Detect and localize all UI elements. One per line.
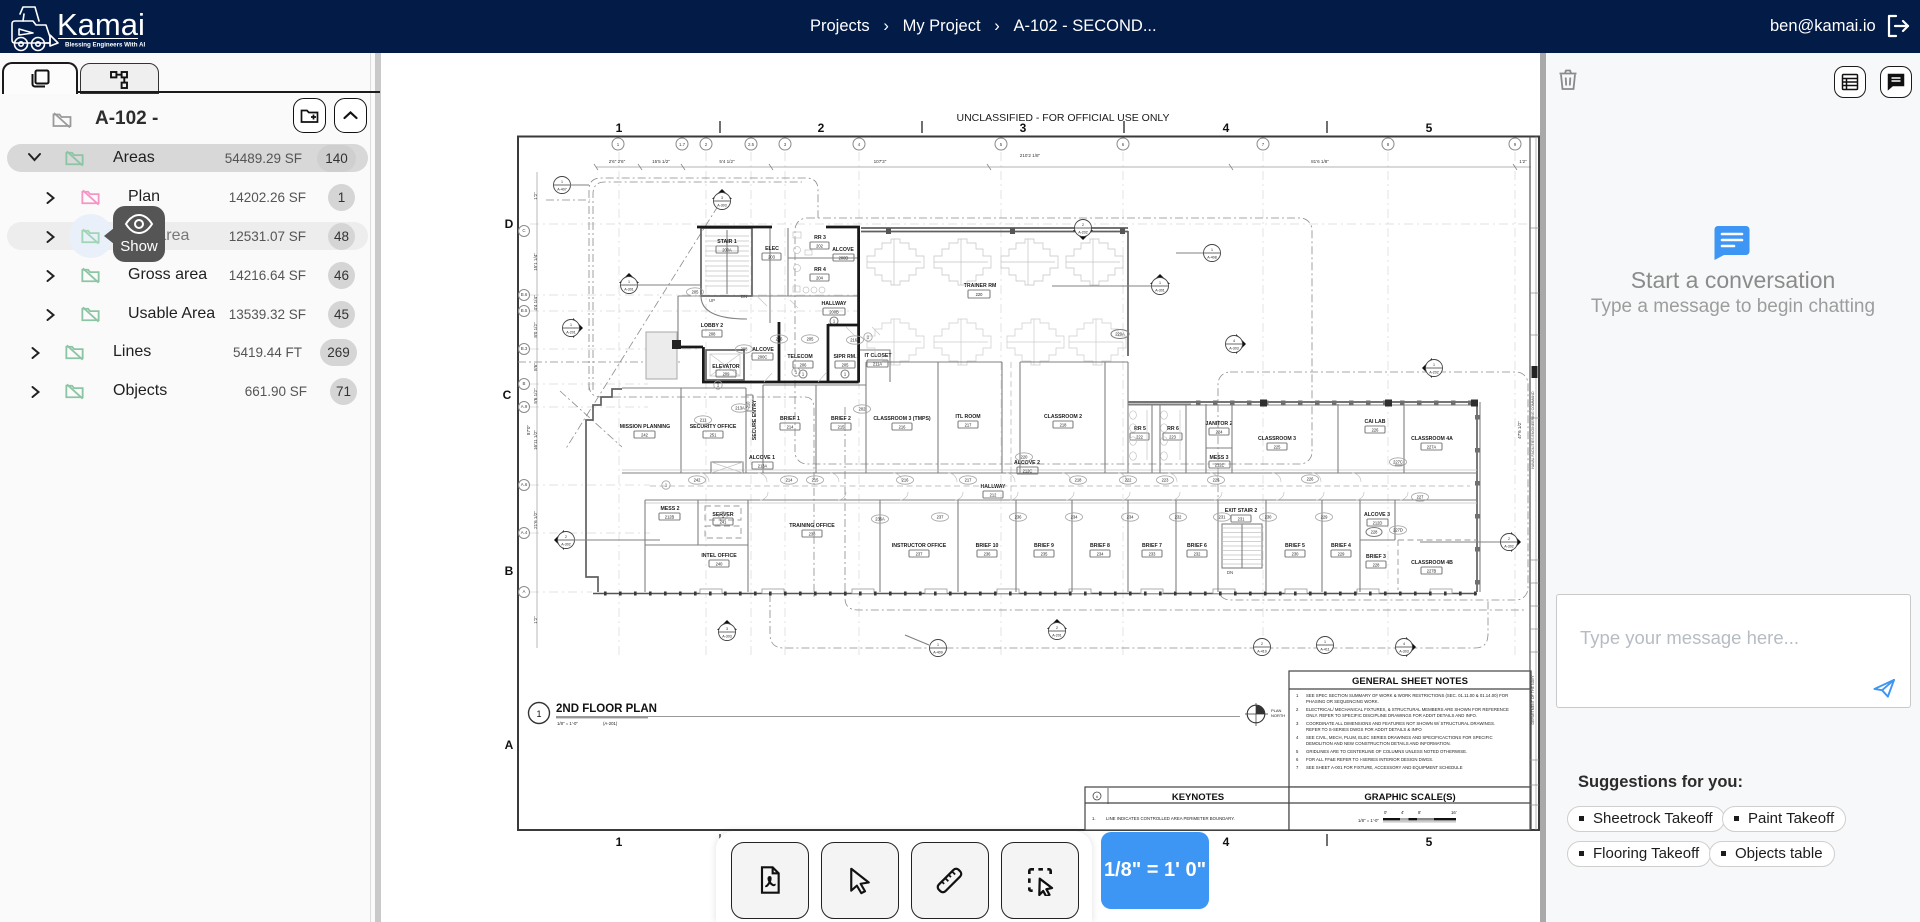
svg-text:224: 224 [1216, 430, 1224, 435]
svg-text:A.9: A.9 [521, 404, 528, 409]
svg-text:232: 232 [1194, 552, 1202, 557]
svg-text:214: 214 [786, 478, 794, 483]
svg-text:238: 238 [809, 532, 817, 537]
svg-text:2'6" 2'6": 2'6" 2'6" [609, 159, 626, 164]
svg-text:234: 234 [1097, 552, 1105, 557]
svg-text:216: 216 [899, 425, 907, 430]
svg-text:CLASSROOM 4A: CLASSROOM 4A [1411, 436, 1453, 442]
svg-text:3: 3 [1020, 121, 1027, 135]
svg-text:217: 217 [965, 423, 973, 428]
svg-text:A-302: A-302 [1504, 545, 1514, 549]
svg-text:200C: 200C [758, 355, 768, 360]
svg-text:SIPR RM.: SIPR RM. [833, 354, 857, 360]
svg-text:213A: 213A [758, 464, 768, 469]
svg-text:BRIEF 7: BRIEF 7 [1142, 543, 1162, 549]
svg-text:2: 2 [1261, 642, 1263, 646]
svg-text:TRAINING OFFICE: TRAINING OFFICE [789, 523, 835, 529]
svg-text:227B: 227B [1427, 569, 1437, 574]
svg-text:UP: UP [709, 298, 715, 303]
svg-text:212: 212 [990, 493, 998, 498]
svg-text:236A: 236A [875, 517, 885, 522]
svg-text:231: 231 [1238, 517, 1246, 522]
svg-text:JANITOR 2: JANITOR 2 [1205, 421, 1232, 427]
svg-text:4: 4 [1233, 339, 1235, 343]
svg-text:8'6": 8'6" [533, 363, 538, 371]
svg-text:215: 215 [838, 425, 846, 430]
svg-text:215: 215 [812, 478, 820, 483]
svg-text:107'3": 107'3" [874, 159, 887, 164]
svg-text:1.7: 1.7 [679, 142, 686, 147]
svg-text:RR 4: RR 4 [814, 267, 826, 273]
svg-text:A-202: A-202 [1429, 371, 1439, 375]
svg-text:81'6 1/8": 81'6 1/8" [1311, 159, 1329, 164]
svg-text:212E: 212E [1215, 463, 1225, 468]
svg-text:BRIEF 6: BRIEF 6 [1187, 543, 1207, 549]
svg-text:230: 230 [1292, 552, 1300, 557]
svg-text:234: 234 [1127, 515, 1135, 520]
svg-text:1'2": 1'2" [533, 616, 538, 624]
svg-text:4: 4 [1403, 642, 1405, 646]
svg-text:228: 228 [1373, 563, 1381, 568]
svg-text:8': 8' [1418, 810, 1421, 815]
svg-text:232: 232 [1175, 515, 1183, 520]
svg-text:TRAINER RM: TRAINER RM [964, 283, 997, 289]
svg-text:229: 229 [1338, 552, 1346, 557]
svg-text:5: 5 [1426, 121, 1433, 135]
svg-text:227D: 227D [1393, 528, 1403, 533]
svg-text:GRAPHIC SCALE(S): GRAPHIC SCALE(S) [1364, 792, 1455, 803]
svg-text:MESS 2: MESS 2 [660, 506, 679, 512]
svg-text:216: 216 [902, 478, 910, 483]
svg-text:A-411: A-411 [1320, 648, 1329, 652]
svg-text:214: 214 [787, 425, 795, 430]
svg-text:251: 251 [710, 433, 718, 438]
svg-text:A-303: A-303 [1229, 347, 1239, 351]
svg-text:234: 234 [1071, 515, 1079, 520]
svg-text:A-301: A-301 [1155, 289, 1165, 293]
svg-text:A-410: A-410 [1257, 650, 1267, 654]
svg-text:4: 4 [1223, 121, 1230, 135]
svg-text:CLASSROOM 3: CLASSROOM 3 [1258, 436, 1296, 442]
svg-text:208: 208 [741, 347, 749, 352]
svg-text:A-202: A-202 [1078, 231, 1088, 235]
svg-text:227C: 227C [1393, 460, 1403, 465]
svg-text:A-301: A-301 [624, 288, 634, 292]
svg-text:240: 240 [716, 562, 724, 567]
svg-text:225: 225 [1274, 445, 1282, 450]
svg-text:A-303: A-303 [722, 635, 732, 639]
svg-text:MISSION PLANNING: MISSION PLANNING [620, 424, 670, 430]
svg-text:205: 205 [807, 337, 815, 342]
svg-text:STAIR 1: STAIR 1 [717, 239, 737, 245]
svg-text:200B: 200B [829, 310, 839, 315]
svg-text:EXIT STAIR 2: EXIT STAIR 2 [1225, 508, 1258, 514]
svg-text:A-302: A-302 [561, 543, 571, 547]
svg-text:220A: 220A [1115, 332, 1125, 337]
svg-text:1: 1 [937, 643, 939, 647]
svg-text:ELEC: ELEC [765, 246, 779, 252]
svg-text:1'2": 1'2" [1519, 159, 1527, 164]
svg-text:1: 1 [1211, 248, 1213, 252]
svg-text:PHASING OR SEQUENCING WORK.: PHASING OR SEQUENCING WORK. [1306, 699, 1379, 704]
svg-text:200D: 200D [839, 256, 849, 261]
svg-text:1: 1 [616, 835, 623, 849]
svg-text:1/8" = 1'-0": 1/8" = 1'-0" [1358, 818, 1379, 823]
svg-text:REFER TO S-SERIES DWGS FOR ADD: REFER TO S-SERIES DWGS FOR ADDIT DETAILS… [1306, 727, 1422, 732]
svg-text:2ND FLOOR PLAN: 2ND FLOOR PLAN [556, 703, 657, 715]
svg-text:2.5: 2.5 [748, 142, 755, 147]
svg-text:213A: 213A [735, 406, 745, 411]
svg-text:203: 203 [768, 255, 776, 260]
svg-text:ITL ROOM: ITL ROOM [955, 414, 980, 420]
svg-text:4: 4 [1223, 835, 1230, 849]
svg-text:A-408: A-408 [1207, 256, 1217, 260]
svg-text:ALCOVE 1: ALCOVE 1 [749, 455, 775, 461]
svg-text:1: 1 [536, 709, 541, 719]
svg-text:A-201: A-201 [566, 331, 576, 335]
svg-text:C: C [522, 228, 525, 233]
svg-text:236: 236 [984, 552, 992, 557]
svg-text:3: 3 [721, 196, 723, 200]
svg-text:INSTRUCTOR OFFICE: INSTRUCTOR OFFICE [892, 543, 947, 549]
svg-text:15'1 1/4": 15'1 1/4" [533, 253, 538, 271]
svg-text:GRIDLINES ARE TO CENTERLINE OF: GRIDLINES ARE TO CENTERLINE OF COLUMNS U… [1306, 749, 1467, 754]
svg-text:205: 205 [692, 290, 700, 295]
svg-text:B: B [523, 381, 526, 386]
svg-text:DN: DN [1227, 570, 1233, 575]
svg-text:206: 206 [800, 363, 808, 368]
svg-text:DEPARTMENT OF THE NAVY: DEPARTMENT OF THE NAVY [1531, 675, 1535, 725]
svg-text:ALCOVE: ALCOVE [832, 247, 854, 253]
svg-text:2: 2 [1082, 223, 1084, 227]
svg-text:COORDINATE ALL DIMENSIONS AND: COORDINATE ALL DIMENSIONS AND FEATURES N… [1306, 721, 1495, 726]
svg-text:NAVAL FACILITIES ENGINEERING C: NAVAL FACILITIES ENGINEERING COMMAND [1531, 391, 1535, 469]
svg-text:212C: 212C [1023, 469, 1033, 474]
svg-text:217: 217 [965, 478, 973, 483]
svg-text:BRIEF 3: BRIEF 3 [1366, 554, 1386, 560]
svg-text:NORTH: NORTH [1271, 713, 1285, 718]
svg-text:4'4 1/4": 4'4 1/4" [533, 295, 538, 311]
svg-text:HALLWAY: HALLWAY [981, 484, 1006, 490]
svg-text:223: 223 [1169, 435, 1177, 440]
svg-text:INTEL OFFICE: INTEL OFFICE [701, 553, 737, 559]
svg-text:2: 2 [1508, 537, 1510, 541]
svg-text:SECURITY OFFICE: SECURITY OFFICE [690, 424, 737, 430]
svg-text:233: 233 [1149, 552, 1157, 557]
svg-text:Kamai: Kamai [57, 7, 145, 42]
svg-text:BRIEF 9: BRIEF 9 [1034, 543, 1054, 549]
svg-text:BRIEF 2: BRIEF 2 [831, 416, 851, 422]
svg-text:A.4: A.4 [521, 530, 528, 535]
svg-text:Blessing Engineers With AI: Blessing Engineers With AI [65, 42, 145, 49]
svg-text:TELECOM: TELECOM [787, 354, 812, 360]
svg-text:2: 2 [1056, 626, 1058, 630]
svg-text:B: B [505, 564, 514, 578]
svg-text:A-407: A-407 [557, 188, 567, 192]
svg-text:16': 16' [1451, 810, 1457, 815]
svg-text:212D: 212D [1373, 521, 1383, 526]
svg-text:BRIEF 1: BRIEF 1 [780, 416, 800, 422]
svg-text:KEYNOTES: KEYNOTES [1172, 792, 1224, 803]
svg-text:208: 208 [709, 332, 717, 337]
svg-text:ALCOVE: ALCOVE [752, 347, 774, 353]
svg-text:LINE INDICATES CONTROLLED AREA: LINE INDICATES CONTROLLED AREA PERIMETER… [1106, 816, 1235, 821]
svg-text:RR 5: RR 5 [1134, 426, 1146, 432]
svg-text:5: 5 [1426, 835, 1433, 849]
svg-text:ELECTRICAL/ MECHANICAL FIXTURE: ELECTRICAL/ MECHANICAL FIXTURES, & STRUC… [1306, 707, 1509, 712]
svg-text:1: 1 [1324, 640, 1326, 644]
svg-text:2: 2 [818, 121, 825, 135]
svg-text:A: A [505, 738, 514, 752]
svg-text:205: 205 [842, 363, 850, 368]
svg-text:D: D [505, 217, 514, 231]
svg-text:SEE SPEC SECTION SUMMARY OF WO: SEE SPEC SECTION SUMMARY OF WORK & WORK … [1306, 693, 1508, 698]
svg-text:21'6 1/2": 21'6 1/2" [533, 511, 538, 529]
svg-text:220: 220 [1021, 455, 1029, 460]
svg-text:ALCOVE 3: ALCOVE 3 [1364, 512, 1390, 518]
svg-text:A-409: A-409 [933, 651, 943, 655]
svg-text:CLASSROOM 4B: CLASSROOM 4B [1411, 560, 1453, 566]
svg-text:225: 225 [1213, 478, 1221, 483]
svg-text:1: 1 [570, 323, 572, 327]
svg-text:RR 6: RR 6 [1167, 426, 1179, 432]
svg-text:242: 242 [694, 478, 702, 483]
svg-text:218: 218 [1060, 423, 1068, 428]
svg-text:1: 1 [1159, 281, 1161, 285]
svg-text:CAI LAB: CAI LAB [1364, 419, 1385, 425]
svg-text:1'2": 1'2" [533, 192, 538, 200]
svg-text:202: 202 [859, 407, 867, 412]
svg-text:231: 231 [1219, 515, 1227, 520]
svg-text:BRIEF 8: BRIEF 8 [1090, 543, 1110, 549]
svg-text:HALLWAY: HALLWAY [822, 301, 847, 307]
svg-text:BRIEF 5: BRIEF 5 [1285, 543, 1305, 549]
svg-text:GENERAL SHEET NOTES: GENERAL SHEET NOTES [1352, 676, 1468, 687]
svg-text:B.6: B.6 [521, 292, 528, 297]
svg-text:DEMOLITION AND NEW CONSTRUCTIO: DEMOLITION AND NEW CONSTRUCTION DETAILS … [1306, 741, 1451, 746]
svg-text:222: 222 [1125, 478, 1133, 483]
svg-text:CLASSROOM 2: CLASSROOM 2 [1044, 414, 1082, 420]
svg-text:ELEVATOR: ELEVATOR [712, 364, 740, 370]
svg-text:229: 229 [1321, 515, 1329, 520]
svg-text:IT CLOSET: IT CLOSET [864, 353, 892, 359]
svg-text:227: 227 [1417, 495, 1425, 500]
svg-text:1: 1 [616, 121, 623, 135]
svg-text:A.6: A.6 [521, 482, 528, 487]
svg-text:5'4 1/2": 5'4 1/2" [719, 159, 735, 164]
svg-text:210'2 1/8": 210'2 1/8" [1020, 153, 1041, 158]
svg-text:212B: 212B [665, 515, 675, 520]
svg-text:237: 237 [937, 515, 945, 520]
svg-text:A: A [523, 589, 526, 594]
svg-text:222: 222 [1136, 435, 1144, 440]
svg-text:226: 226 [1307, 477, 1315, 482]
svg-text:A-303: A-303 [717, 204, 727, 208]
svg-text:223: 223 [1162, 478, 1170, 483]
svg-text:FOR ALL FF&E REFER TO I-SERIES: FOR ALL FF&E REFER TO I-SERIES INTERIOR … [1306, 757, 1433, 762]
svg-text:230: 230 [1265, 515, 1273, 520]
svg-text:C: C [503, 388, 512, 402]
svg-text:1: 1 [1433, 363, 1435, 367]
svg-text:3: 3 [726, 627, 728, 631]
svg-text:206: 206 [776, 337, 784, 342]
svg-text:209: 209 [723, 372, 731, 377]
svg-text:CLASSROOM 3 (TMPS): CLASSROOM 3 (TMPS) [873, 416, 931, 422]
svg-text:DN: DN [741, 294, 747, 299]
svg-text:RR 3: RR 3 [814, 235, 826, 241]
svg-text:8'0 1/2": 8'0 1/2" [533, 322, 538, 338]
svg-text:226: 226 [1372, 428, 1380, 433]
svg-text:236: 236 [1015, 515, 1023, 520]
svg-text:MESS 3: MESS 3 [1209, 455, 1228, 461]
svg-text:211: 211 [700, 418, 707, 423]
svg-text:(A-201): (A-201) [603, 721, 618, 726]
svg-text:B.3: B.3 [521, 346, 528, 351]
svg-text:202: 202 [816, 244, 824, 249]
svg-text:218: 218 [1075, 478, 1083, 483]
svg-text:2: 2 [565, 535, 567, 539]
svg-text:BRIEF 4: BRIEF 4 [1331, 543, 1351, 549]
svg-text:16'11 1/2": 16'11 1/2" [533, 430, 538, 450]
svg-text:A-201: A-201 [1052, 634, 1062, 638]
svg-text:200A: 200A [722, 248, 732, 253]
svg-text:BRIEF 10: BRIEF 10 [976, 543, 999, 549]
svg-text:15'5 1/2": 15'5 1/2" [652, 159, 670, 164]
svg-text:A-303: A-303 [1399, 650, 1409, 654]
svg-text:5'6 1/2": 5'6 1/2" [533, 388, 538, 404]
svg-text:LOBBY 2: LOBBY 2 [701, 323, 724, 329]
svg-text:4': 4' [1401, 810, 1404, 815]
svg-text:SEE SHEET A-001 FOR FIXTURE, A: SEE SHEET A-001 FOR FIXTURE, ACCESSORY A… [1306, 765, 1463, 770]
svg-text:0': 0' [1384, 810, 1387, 815]
svg-text:87'0": 87'0" [526, 425, 531, 436]
svg-text:228: 228 [1371, 530, 1379, 535]
svg-text:235: 235 [1041, 552, 1049, 557]
svg-text:B.5: B.5 [521, 308, 528, 313]
svg-text:227A: 227A [1427, 445, 1437, 450]
svg-text:1.: 1. [1092, 816, 1096, 821]
svg-text:SEE CIVIL, MECH, PLUM, ELEC SE: SEE CIVIL, MECH, PLUM, ELEC SERIES DRAWI… [1306, 735, 1493, 740]
svg-text:242: 242 [641, 433, 649, 438]
svg-text:1: 1 [561, 180, 563, 184]
svg-text:UNCLASSIFIED - FOR OFFICIAL US: UNCLASSIFIED - FOR OFFICIAL USE ONLY [957, 112, 1170, 124]
svg-text:ONLY. REFER TO SPECIFIC DISCIP: ONLY. REFER TO SPECIFIC DISCIPLINE DRAWI… [1306, 713, 1477, 718]
svg-text:237: 237 [916, 552, 924, 557]
svg-text:220: 220 [976, 292, 984, 297]
svg-text:216A: 216A [850, 338, 860, 343]
svg-text:1/8" = 1'-0": 1/8" = 1'-0" [557, 721, 578, 726]
svg-text:47'6 1/2": 47'6 1/2" [1517, 421, 1522, 439]
svg-text:1: 1 [628, 280, 630, 284]
svg-text:204: 204 [816, 276, 824, 281]
